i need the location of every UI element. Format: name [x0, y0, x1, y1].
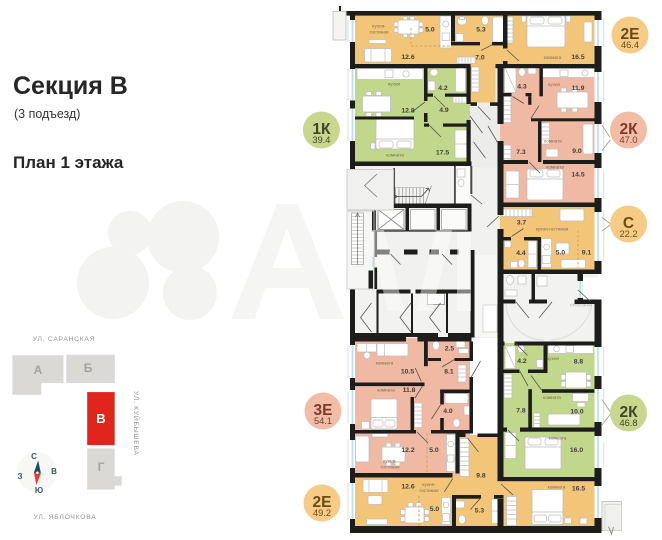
- svg-text:7.0: 7.0: [475, 55, 485, 62]
- svg-text:46.4: 46.4: [621, 40, 639, 50]
- svg-text:5.3: 5.3: [476, 27, 486, 34]
- svg-text:9.8: 9.8: [476, 473, 486, 480]
- svg-text:кухня-гостиная: кухня-гостиная: [536, 227, 569, 232]
- svg-text:10.0: 10.0: [570, 409, 583, 416]
- svg-text:комната: комната: [549, 436, 567, 441]
- svg-text:4.3: 4.3: [517, 84, 527, 91]
- svg-text:С: С: [31, 452, 37, 461]
- svg-text:(3 подъезд): (3 подъезд): [14, 107, 80, 121]
- svg-text:комната: комната: [544, 139, 562, 144]
- svg-text:5.0: 5.0: [430, 506, 440, 513]
- svg-text:ПРИХОЖАЯ: ПРИХОЖАЯ: [570, 304, 592, 308]
- svg-text:10.5: 10.5: [401, 369, 414, 376]
- svg-text:З: З: [17, 472, 22, 481]
- svg-text:Секция В: Секция В: [13, 72, 128, 100]
- svg-text:4.2: 4.2: [438, 85, 448, 92]
- svg-text:кухня-: кухня-: [383, 459, 397, 464]
- svg-text:Б: Б: [84, 361, 93, 375]
- svg-text:комната: комната: [377, 388, 395, 393]
- svg-text:Ю: Ю: [35, 486, 43, 495]
- svg-text:гостиная: гостиная: [419, 488, 439, 493]
- svg-text:11.8: 11.8: [403, 387, 416, 394]
- svg-text:9.1: 9.1: [582, 250, 592, 257]
- svg-text:8.8: 8.8: [574, 359, 584, 366]
- svg-text:УЛ. САРАНСКАЯ: УЛ. САРАНСКАЯ: [33, 336, 96, 343]
- svg-text:5.3: 5.3: [475, 508, 485, 515]
- svg-text:12.8: 12.8: [401, 108, 414, 115]
- svg-text:54.1: 54.1: [314, 416, 332, 426]
- svg-text:А: А: [34, 363, 43, 377]
- svg-text:кухня-: кухня-: [422, 482, 436, 487]
- svg-text:гостиная: гостиная: [369, 30, 389, 35]
- svg-text:49.2: 49.2: [313, 508, 331, 518]
- svg-text:комната: комната: [546, 165, 564, 170]
- svg-text:47.0: 47.0: [619, 135, 637, 145]
- svg-text:5.0: 5.0: [556, 250, 566, 257]
- svg-text:кухня: кухня: [388, 82, 400, 87]
- svg-text:кухня: кухня: [547, 356, 559, 361]
- svg-text:16.0: 16.0: [570, 447, 583, 454]
- svg-text:5.0: 5.0: [425, 27, 435, 34]
- svg-text:комната: комната: [386, 153, 404, 158]
- svg-text:4.0: 4.0: [443, 408, 453, 415]
- svg-text:3.7: 3.7: [517, 220, 527, 227]
- svg-text:4.9: 4.9: [439, 107, 449, 114]
- svg-text:В: В: [96, 411, 105, 426]
- svg-text:14.5: 14.5: [571, 172, 584, 179]
- svg-text:кухня-: кухня-: [372, 24, 386, 29]
- svg-text:12.2: 12.2: [401, 447, 414, 454]
- svg-text:комната: комната: [548, 485, 566, 490]
- svg-text:22.2: 22.2: [619, 229, 637, 239]
- svg-text:2.5: 2.5: [445, 346, 455, 353]
- svg-text:Г: Г: [98, 460, 105, 474]
- svg-text:УЛ. КУЙБЫШЕВА: УЛ. КУЙБЫШЕВА: [132, 391, 141, 456]
- svg-text:39.4: 39.4: [312, 135, 330, 145]
- svg-text:16.5: 16.5: [571, 54, 584, 61]
- svg-text:4.4: 4.4: [516, 250, 526, 257]
- svg-text:План 1 этажа: План 1 этажа: [13, 153, 124, 172]
- svg-text:12.6: 12.6: [401, 54, 414, 61]
- svg-text:кухня: кухня: [548, 82, 560, 87]
- svg-text:комната: комната: [543, 395, 561, 400]
- svg-text:8.1: 8.1: [444, 369, 454, 376]
- svg-text:4.2: 4.2: [517, 358, 527, 365]
- svg-text:комната: комната: [376, 361, 394, 366]
- svg-text:12.6: 12.6: [401, 484, 414, 491]
- svg-text:5.0: 5.0: [429, 447, 439, 454]
- svg-text:УЛ. ЯБЛОЧКОВА: УЛ. ЯБЛОЧКОВА: [34, 514, 97, 521]
- svg-text:В: В: [51, 467, 57, 476]
- svg-text:комната: комната: [544, 55, 562, 60]
- svg-text:46.8: 46.8: [619, 418, 637, 428]
- svg-text:16.5: 16.5: [572, 486, 585, 493]
- svg-text:гостиная: гостиная: [380, 465, 400, 470]
- svg-text:7.3: 7.3: [516, 149, 526, 156]
- svg-text:9.0: 9.0: [572, 148, 582, 155]
- svg-text:11.9: 11.9: [572, 85, 585, 92]
- svg-text:17.5: 17.5: [436, 150, 449, 157]
- svg-text:7.8: 7.8: [516, 408, 526, 415]
